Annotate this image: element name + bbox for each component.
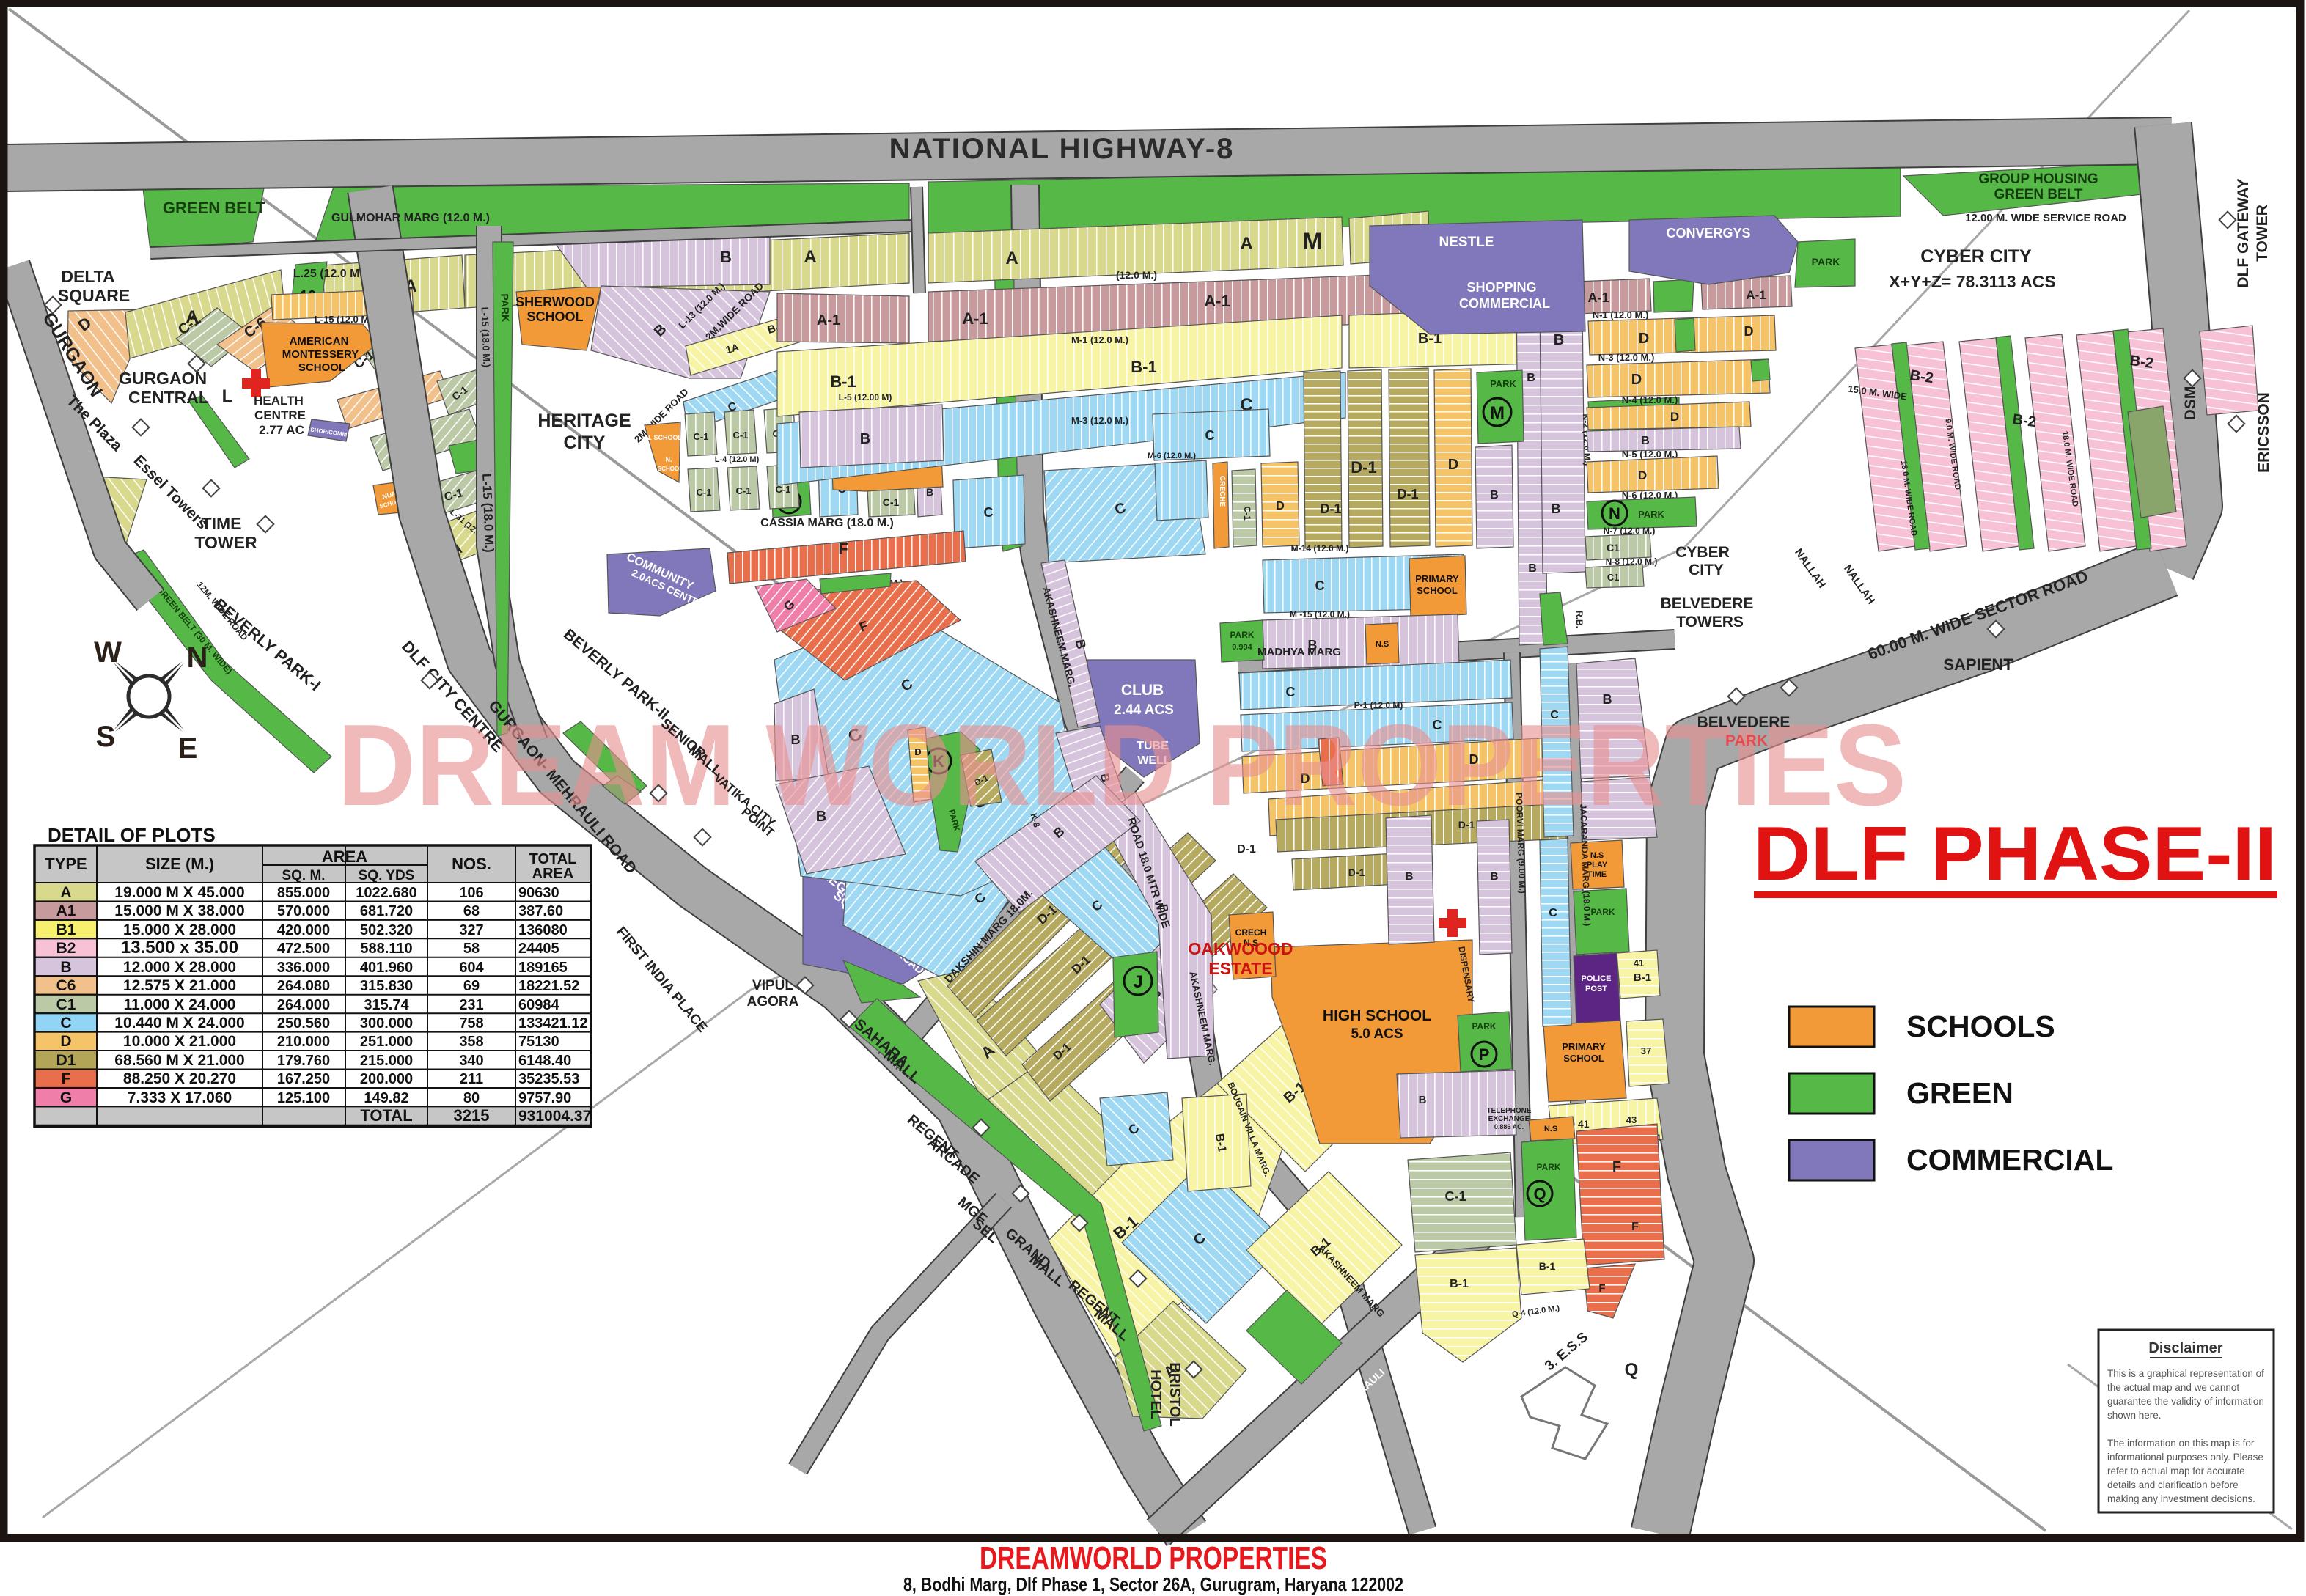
- svg-text:N: N: [187, 641, 208, 674]
- svg-text:327: 327: [459, 922, 483, 938]
- svg-text:N: N: [1609, 504, 1620, 523]
- svg-text:420.000: 420.000: [277, 922, 330, 938]
- svg-text:68.560 M X 21.000: 68.560 M X 21.000: [114, 1052, 244, 1069]
- svg-text:C-1: C-1: [694, 431, 709, 442]
- svg-text:This is a graphical representa: This is a graphical representation of: [2107, 1368, 2264, 1379]
- svg-text:MONTESSERY: MONTESSERY: [282, 348, 359, 361]
- svg-text:B-1: B-1: [1450, 1278, 1469, 1290]
- svg-text:N.S: N.S: [1544, 1125, 1557, 1133]
- svg-text:C1: C1: [56, 996, 76, 1013]
- svg-text:B-1: B-1: [1131, 358, 1156, 376]
- svg-text:F: F: [1612, 1159, 1621, 1175]
- svg-text:F: F: [1598, 1282, 1605, 1295]
- svg-text:DREAM WORLD PROPERTIES: DREAM WORLD PROPERTIES: [337, 701, 1906, 830]
- svg-text:35235.53: 35235.53: [518, 1071, 579, 1087]
- svg-text:6148.40: 6148.40: [518, 1053, 571, 1069]
- svg-text:D: D: [1744, 324, 1754, 339]
- svg-text:SHERWOOD: SHERWOOD: [515, 295, 595, 309]
- svg-text:SHOPPING: SHOPPING: [1466, 280, 1536, 295]
- svg-text:B-2: B-2: [2011, 411, 2037, 430]
- svg-text:B: B: [860, 431, 870, 447]
- svg-text:COMMERCIAL: COMMERCIAL: [1906, 1143, 2113, 1177]
- svg-text:SQUARE: SQUARE: [58, 286, 130, 305]
- svg-text:B: B: [1527, 372, 1535, 384]
- svg-text:C: C: [984, 505, 994, 520]
- svg-text:401.960: 401.960: [360, 960, 413, 976]
- svg-text:N-3 (12.0 M.): N-3 (12.0 M.): [1598, 352, 1655, 363]
- svg-text:41: 41: [1634, 957, 1644, 968]
- svg-text:C-1: C-1: [697, 487, 712, 498]
- svg-text:PARK: PARK: [499, 293, 511, 322]
- svg-text:CYBER CITY: CYBER CITY: [1920, 246, 2032, 267]
- svg-text:HOTEL: HOTEL: [1148, 1369, 1164, 1419]
- svg-text:167.250: 167.250: [277, 1071, 330, 1087]
- svg-text:MADHYA MARG: MADHYA MARG: [1257, 646, 1341, 658]
- svg-text:Q: Q: [1533, 1185, 1546, 1203]
- svg-text:315.74: 315.74: [364, 997, 409, 1013]
- svg-text:PRIMARY: PRIMARY: [1562, 1041, 1606, 1052]
- svg-text:NATIONAL HIGHWAY-8: NATIONAL HIGHWAY-8: [889, 133, 1235, 165]
- svg-text:N-4 (12.0 M.): N-4 (12.0 M.): [1622, 394, 1678, 405]
- svg-text:A-1: A-1: [817, 312, 840, 328]
- svg-text:472.500: 472.500: [277, 941, 330, 957]
- svg-text:D: D: [1448, 457, 1458, 473]
- svg-text:GULMOHAR MARG (12.0 M.): GULMOHAR MARG (12.0 M.): [331, 212, 490, 224]
- svg-text:DELTA: DELTA: [61, 267, 114, 286]
- svg-text:CASSIA MARG (18.0 M.): CASSIA MARG (18.0 M.): [760, 517, 894, 529]
- svg-text:DLF PHASE-II: DLF PHASE-II: [1753, 812, 2277, 897]
- svg-text:B: B: [1491, 870, 1499, 883]
- svg-text:D: D: [1638, 468, 1647, 482]
- svg-text:L-15 (18.0 M.): L-15 (18.0 M.): [480, 306, 493, 367]
- svg-text:TYPE: TYPE: [45, 855, 87, 873]
- svg-text:refer to actual map for accura: refer to actual map for accurate: [2107, 1466, 2245, 1477]
- svg-text:B-1: B-1: [1539, 1260, 1556, 1272]
- svg-text:387.60: 387.60: [518, 903, 563, 919]
- svg-text:1022.680: 1022.680: [356, 885, 416, 901]
- svg-text:GURGAON: GURGAON: [119, 369, 207, 388]
- svg-text:C: C: [1205, 428, 1215, 443]
- svg-text:58: 58: [463, 941, 480, 957]
- svg-text:336.000: 336.000: [277, 960, 330, 976]
- svg-text:GREEN BELT: GREEN BELT: [1994, 187, 2082, 202]
- svg-text:15.000 X 28.000: 15.000 X 28.000: [123, 922, 236, 938]
- svg-text:C-1: C-1: [733, 430, 749, 441]
- svg-text:B: B: [1406, 870, 1414, 883]
- svg-text:88.250 X 20.270: 88.250 X 20.270: [123, 1070, 236, 1087]
- svg-text:M-14 (12.0 M.): M-14 (12.0 M.): [1291, 543, 1349, 554]
- svg-text:SAPIENT: SAPIENT: [1943, 655, 2013, 674]
- svg-text:M -15 (12.0 M.): M -15 (12.0 M.): [1290, 609, 1350, 619]
- svg-text:B: B: [1641, 435, 1650, 447]
- svg-text:C-1: C-1: [736, 485, 752, 496]
- svg-text:90630: 90630: [518, 885, 559, 901]
- svg-text:681.720: 681.720: [360, 903, 413, 919]
- svg-text:B: B: [60, 959, 71, 976]
- svg-text:HEALTH: HEALTH: [254, 394, 304, 408]
- svg-text:PARK: PARK: [1230, 630, 1254, 640]
- svg-text:F: F: [1631, 1221, 1639, 1233]
- svg-text:B-2: B-2: [1909, 367, 1934, 386]
- svg-text:D-1: D-1: [1320, 501, 1341, 516]
- svg-text:106: 106: [459, 885, 483, 901]
- svg-text:A: A: [804, 247, 816, 267]
- svg-text:7.333 X 17.060: 7.333 X 17.060: [128, 1089, 232, 1106]
- svg-text:BRISTOL: BRISTOL: [1167, 1362, 1183, 1426]
- svg-text:CITY: CITY: [1689, 562, 1724, 578]
- svg-text:shown here.: shown here.: [2107, 1410, 2162, 1421]
- svg-text:D: D: [1639, 331, 1649, 347]
- svg-text:N. SCHOOL: N. SCHOOL: [645, 434, 683, 441]
- svg-text:the actual map and we cannot: the actual map and we cannot: [2107, 1382, 2239, 1393]
- svg-text:CENTRE: CENTRE: [254, 408, 306, 422]
- svg-text:C-1: C-1: [1444, 1189, 1466, 1204]
- svg-text:C-1: C-1: [1242, 506, 1252, 521]
- svg-text:TOWER: TOWER: [2254, 205, 2271, 262]
- svg-text:10.000 X 21.000: 10.000 X 21.000: [123, 1033, 236, 1050]
- svg-text:DLF GATEWAY: DLF GATEWAY: [2235, 178, 2252, 287]
- svg-text:BELVEDERE: BELVEDERE: [1697, 714, 1791, 731]
- svg-text:SCHOOL: SCHOOL: [1417, 585, 1458, 596]
- svg-text:68: 68: [463, 903, 480, 919]
- svg-text:SQ. M.: SQ. M.: [282, 868, 325, 883]
- svg-text:133421.12: 133421.12: [518, 1015, 588, 1031]
- svg-text:COMMERCIAL: COMMERCIAL: [1459, 296, 1550, 311]
- svg-text:DETAIL OF PLOTS: DETAIL OF PLOTS: [48, 824, 216, 846]
- svg-text:A1: A1: [56, 902, 76, 919]
- svg-text:W: W: [94, 636, 122, 669]
- svg-text:179.760: 179.760: [277, 1053, 330, 1069]
- svg-text:M-6 (12.0 M.): M-6 (12.0 M.): [1148, 452, 1196, 460]
- svg-text:DSM: DSM: [2182, 386, 2199, 421]
- svg-text:B-1: B-1: [830, 372, 856, 391]
- svg-text:C-1: C-1: [883, 496, 900, 508]
- svg-text:PARK: PARK: [1812, 256, 1840, 268]
- svg-text:L: L: [222, 386, 233, 406]
- svg-text:TIME: TIME: [202, 514, 242, 533]
- svg-text:BELVEDERE: BELVEDERE: [1661, 595, 1754, 612]
- svg-text:300.000: 300.000: [360, 1015, 413, 1031]
- svg-text:200.000: 200.000: [360, 1071, 413, 1087]
- svg-text:931004.37: 931004.37: [518, 1108, 591, 1125]
- svg-text:37: 37: [1641, 1045, 1651, 1056]
- svg-text:POST: POST: [1585, 985, 1607, 993]
- svg-text:5.0 ACS: 5.0 ACS: [1351, 1026, 1403, 1042]
- svg-text:PRIMARY: PRIMARY: [1415, 573, 1459, 584]
- svg-text:TELEPHONE: TELEPHONE: [1486, 1107, 1531, 1115]
- svg-text:N.: N.: [666, 456, 672, 463]
- svg-text:69: 69: [463, 978, 480, 994]
- svg-text:A: A: [1005, 249, 1018, 268]
- svg-text:B-1: B-1: [1634, 971, 1651, 984]
- svg-text:X+Y+Z= 78.3113 ACS: X+Y+Z= 78.3113 ACS: [1889, 272, 2055, 291]
- svg-text:A: A: [60, 884, 71, 901]
- svg-text:8, Bodhi Marg, Dlf Phase 1, Se: 8, Bodhi Marg, Dlf Phase 1, Sector 26A, …: [903, 1573, 1403, 1595]
- svg-text:L.25 (12.0 M.): L.25 (12.0 M.): [293, 268, 367, 280]
- svg-text:CONVERGYS: CONVERGYS: [1666, 226, 1750, 240]
- svg-text:264.000: 264.000: [277, 997, 330, 1013]
- svg-text:OAKWOOOD: OAKWOOOD: [1188, 939, 1293, 958]
- svg-text:570.000: 570.000: [277, 903, 330, 919]
- svg-text:43: 43: [1626, 1114, 1637, 1125]
- svg-text:136080: 136080: [518, 922, 568, 938]
- svg-text:CITY: CITY: [564, 433, 606, 453]
- svg-text:210.000: 210.000: [277, 1034, 330, 1050]
- svg-text:B-2: B-2: [2129, 353, 2154, 372]
- svg-text:D: D: [60, 1033, 71, 1050]
- svg-text:A-1: A-1: [1587, 290, 1609, 305]
- svg-text:11.000 X 24.000: 11.000 X 24.000: [124, 996, 236, 1013]
- svg-text:B2: B2: [56, 940, 76, 957]
- svg-text:CLUB: CLUB: [1121, 682, 1164, 699]
- svg-text:HERITAGE: HERITAGE: [537, 411, 631, 431]
- svg-text:264.080: 264.080: [277, 978, 330, 994]
- svg-text:13.500 x 35.00: 13.500 x 35.00: [121, 938, 238, 957]
- svg-text:15.000 M X 38.000: 15.000 M X 38.000: [114, 902, 244, 919]
- svg-text:M: M: [1303, 228, 1323, 254]
- svg-text:CENTRAL: CENTRAL: [128, 388, 209, 407]
- svg-text:C: C: [1549, 907, 1557, 919]
- svg-text:E: E: [178, 732, 198, 765]
- svg-text:SQ. YDS: SQ. YDS: [359, 868, 415, 883]
- svg-text:R.B.: R.B.: [1574, 611, 1585, 628]
- svg-text:P: P: [1479, 1045, 1490, 1064]
- svg-text:604: 604: [459, 960, 484, 976]
- svg-text:L-4 (12.0 M): L-4 (12.0 M): [715, 455, 760, 464]
- svg-text:D-1: D-1: [1397, 487, 1418, 501]
- svg-text:POLICE: POLICE: [1582, 974, 1612, 983]
- svg-text:D: D: [1631, 372, 1642, 388]
- svg-text:PARK: PARK: [1638, 509, 1664, 520]
- svg-text:C: C: [1286, 685, 1296, 699]
- svg-text:N.S: N.S: [1590, 851, 1604, 860]
- svg-text:ESTATE: ESTATE: [1208, 959, 1272, 978]
- svg-text:SCHOOL: SCHOOL: [298, 361, 345, 374]
- svg-text:informational purposes only. P: informational purposes only. Please: [2107, 1452, 2263, 1463]
- svg-text:B: B: [720, 248, 732, 266]
- svg-text:C: C: [1315, 578, 1325, 593]
- svg-text:TOWERS: TOWERS: [1676, 614, 1744, 630]
- svg-text:D-1: D-1: [1351, 458, 1376, 477]
- svg-text:B: B: [1528, 562, 1537, 575]
- svg-text:149.82: 149.82: [364, 1090, 408, 1106]
- svg-text:315.830: 315.830: [360, 978, 413, 994]
- svg-text:N.S: N.S: [1376, 640, 1389, 649]
- svg-text:251.000: 251.000: [360, 1034, 413, 1050]
- svg-text:SCHOOL: SCHOOL: [526, 309, 583, 324]
- svg-text:DREAMWORLD PROPERTIES: DREAMWORLD PROPERTIES: [980, 1540, 1327, 1576]
- svg-text:D-1: D-1: [1237, 843, 1256, 856]
- svg-text:TOWER: TOWER: [194, 533, 257, 552]
- svg-text:B: B: [1554, 332, 1564, 348]
- svg-text:211: 211: [460, 1071, 483, 1087]
- svg-text:CRECHE: CRECHE: [1218, 476, 1226, 507]
- svg-text:Q: Q: [1625, 1360, 1639, 1380]
- svg-text:B: B: [1490, 489, 1499, 501]
- svg-text:125.100: 125.100: [277, 1090, 330, 1106]
- svg-text:588.110: 588.110: [360, 941, 412, 957]
- svg-text:PARK: PARK: [1536, 1162, 1560, 1172]
- svg-text:AGORA: AGORA: [747, 994, 799, 1010]
- svg-text:189165: 189165: [518, 960, 568, 976]
- svg-text:C: C: [60, 1015, 71, 1031]
- svg-text:18221.52: 18221.52: [518, 978, 579, 994]
- svg-text:M-3 (12.0 M.): M-3 (12.0 M.): [1071, 415, 1128, 426]
- svg-text:758: 758: [459, 1015, 483, 1031]
- svg-text:CYBER: CYBER: [1675, 544, 1730, 561]
- svg-text:L-15 (18.0 M.): L-15 (18.0 M.): [480, 474, 496, 553]
- svg-text:B: B: [1419, 1094, 1427, 1106]
- svg-text:340: 340: [459, 1053, 483, 1069]
- svg-text:AREA: AREA: [322, 847, 367, 866]
- svg-text:12.00 M. WIDE SERVICE ROAD: 12.00 M. WIDE SERVICE ROAD: [1965, 212, 2126, 224]
- svg-text:502.320: 502.320: [360, 922, 413, 938]
- svg-text:D: D: [1670, 410, 1679, 424]
- svg-text:GREEN: GREEN: [1906, 1076, 2013, 1110]
- svg-text:215.000: 215.000: [360, 1053, 413, 1069]
- svg-text:TOTAL: TOTAL: [360, 1106, 412, 1125]
- svg-text:F: F: [838, 540, 848, 558]
- svg-text:A-1: A-1: [1204, 292, 1230, 310]
- svg-text:GREEN BELT: GREEN BELT: [163, 199, 266, 217]
- svg-text:VIPUL: VIPUL: [752, 978, 793, 993]
- svg-text:D1: D1: [56, 1052, 76, 1069]
- svg-text:details and clarification befo: details and clarification before: [2107, 1479, 2239, 1490]
- svg-text:Disclaimer: Disclaimer: [2148, 1340, 2222, 1356]
- svg-text:358: 358: [459, 1034, 483, 1050]
- svg-text:M: M: [1490, 403, 1505, 423]
- svg-text:A-1: A-1: [1746, 288, 1766, 302]
- svg-text:SIZE (M.): SIZE (M.): [145, 855, 214, 873]
- svg-text:L-5 (12.00 M): L-5 (12.00 M): [839, 392, 892, 402]
- svg-text:EXCHANGE: EXCHANGE: [1488, 1115, 1530, 1123]
- svg-text:NOS.: NOS.: [452, 855, 491, 873]
- svg-text:C1: C1: [1607, 542, 1620, 554]
- svg-text:231: 231: [459, 997, 483, 1013]
- svg-text:24405: 24405: [518, 941, 559, 957]
- svg-text:3215: 3215: [454, 1106, 490, 1125]
- svg-text:B1: B1: [56, 922, 76, 938]
- svg-text:PARK: PARK: [1490, 378, 1516, 389]
- svg-text:60984: 60984: [518, 997, 559, 1013]
- svg-text:TOTAL: TOTAL: [529, 851, 577, 867]
- svg-text:75130: 75130: [518, 1034, 559, 1050]
- svg-text:D-1: D-1: [1348, 867, 1365, 878]
- svg-text:A-1: A-1: [962, 309, 988, 328]
- svg-text:PARK: PARK: [1590, 907, 1615, 917]
- svg-text:CRECH: CRECH: [1235, 927, 1267, 938]
- svg-text:The information on this map is: The information on this map is for: [2107, 1438, 2255, 1449]
- svg-text:855.000: 855.000: [277, 885, 330, 901]
- svg-text:2.77 AC: 2.77 AC: [259, 423, 304, 437]
- svg-text:0.994: 0.994: [1232, 643, 1252, 652]
- svg-text:80: 80: [463, 1090, 480, 1106]
- svg-text:S: S: [96, 721, 116, 753]
- svg-text:J: J: [1133, 972, 1142, 992]
- svg-text:GROUP HOUSING: GROUP HOUSING: [1978, 172, 2098, 187]
- svg-text:NESTLE: NESTLE: [1439, 235, 1494, 250]
- svg-text:AMERICAN: AMERICAN: [290, 335, 349, 347]
- svg-text:HIGH SCHOOL: HIGH SCHOOL: [1323, 1007, 1431, 1024]
- svg-text:A: A: [1240, 234, 1252, 254]
- svg-text:C1: C1: [1607, 572, 1620, 583]
- svg-text:12.575 X 21.000: 12.575 X 21.000: [123, 977, 236, 994]
- svg-text:D: D: [1276, 500, 1285, 512]
- svg-text:10.440 M X 24.000: 10.440 M X 24.000: [114, 1015, 244, 1031]
- svg-text:N-1 (12.0 M.): N-1 (12.0 M.): [1593, 309, 1649, 320]
- svg-text:making any investment decision: making any investment decisions.: [2107, 1493, 2255, 1504]
- svg-text:SCHOOLS: SCHOOLS: [1906, 1010, 2055, 1043]
- svg-text:ERICSSON: ERICSSON: [2255, 392, 2272, 473]
- svg-text:B: B: [1552, 501, 1561, 516]
- svg-text:19.000 M X 45.000: 19.000 M X 45.000: [114, 884, 244, 901]
- svg-text:G: G: [60, 1089, 72, 1106]
- svg-text:250.560: 250.560: [277, 1015, 330, 1031]
- svg-text:AREA: AREA: [532, 866, 574, 882]
- svg-text:SCHOOL: SCHOOL: [658, 466, 683, 472]
- svg-text:9757.90: 9757.90: [518, 1090, 571, 1106]
- svg-text:C6: C6: [56, 977, 76, 994]
- svg-text:F: F: [62, 1070, 71, 1087]
- svg-text:0.886 AC.: 0.886 AC.: [1494, 1123, 1524, 1130]
- svg-text:guarantee the validity of info: guarantee the validity of information: [2107, 1396, 2264, 1407]
- svg-text:PARK: PARK: [1472, 1021, 1496, 1031]
- svg-text:M-1 (12.0 M.): M-1 (12.0 M.): [1071, 334, 1128, 345]
- svg-text:(12.0 M.): (12.0 M.): [1116, 269, 1157, 281]
- svg-text:SCHOOL: SCHOOL: [1563, 1053, 1604, 1064]
- svg-text:PARK: PARK: [1725, 732, 1768, 749]
- svg-text:12.000 X 28.000: 12.000 X 28.000: [123, 959, 236, 976]
